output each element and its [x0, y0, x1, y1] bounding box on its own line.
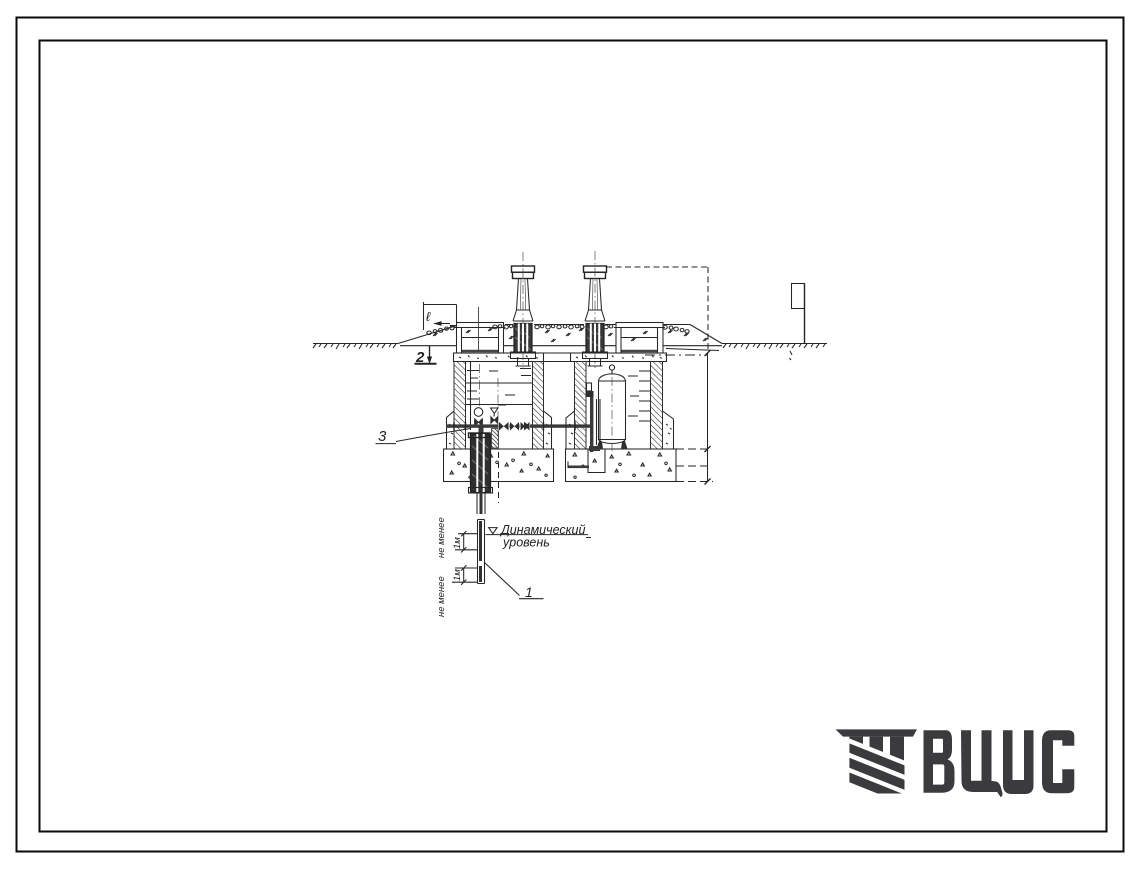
svg-text:ℓ: ℓ [426, 309, 431, 324]
svg-text:не менее: не менее [436, 517, 447, 558]
svg-text:1: 1 [525, 584, 533, 600]
svg-text:1м: 1м [452, 569, 463, 581]
svg-text:3: 3 [378, 428, 387, 445]
svg-text:уровень: уровень [502, 536, 550, 550]
svg-text:не менее: не менее [436, 576, 447, 617]
svg-text:1м: 1м [452, 537, 463, 549]
